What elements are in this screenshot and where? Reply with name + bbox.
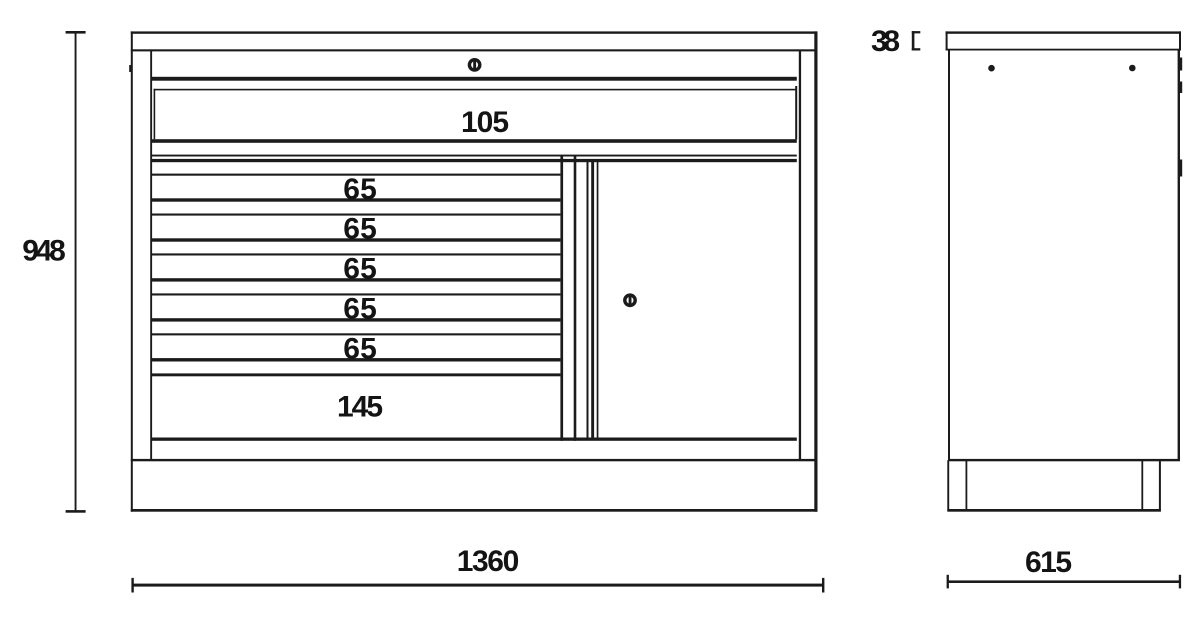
svg-text:65: 65 [343,173,377,206]
svg-text:1360: 1360 [457,545,520,578]
svg-text:948: 948 [22,235,66,268]
svg-text:65: 65 [343,293,377,326]
svg-text:65: 65 [343,253,377,286]
svg-text:38: 38 [871,25,900,58]
svg-text:65: 65 [343,333,377,366]
svg-text:615: 615 [1025,546,1072,579]
svg-text:105: 105 [461,106,509,139]
svg-text:145: 145 [337,390,383,423]
svg-text:65: 65 [343,213,377,246]
